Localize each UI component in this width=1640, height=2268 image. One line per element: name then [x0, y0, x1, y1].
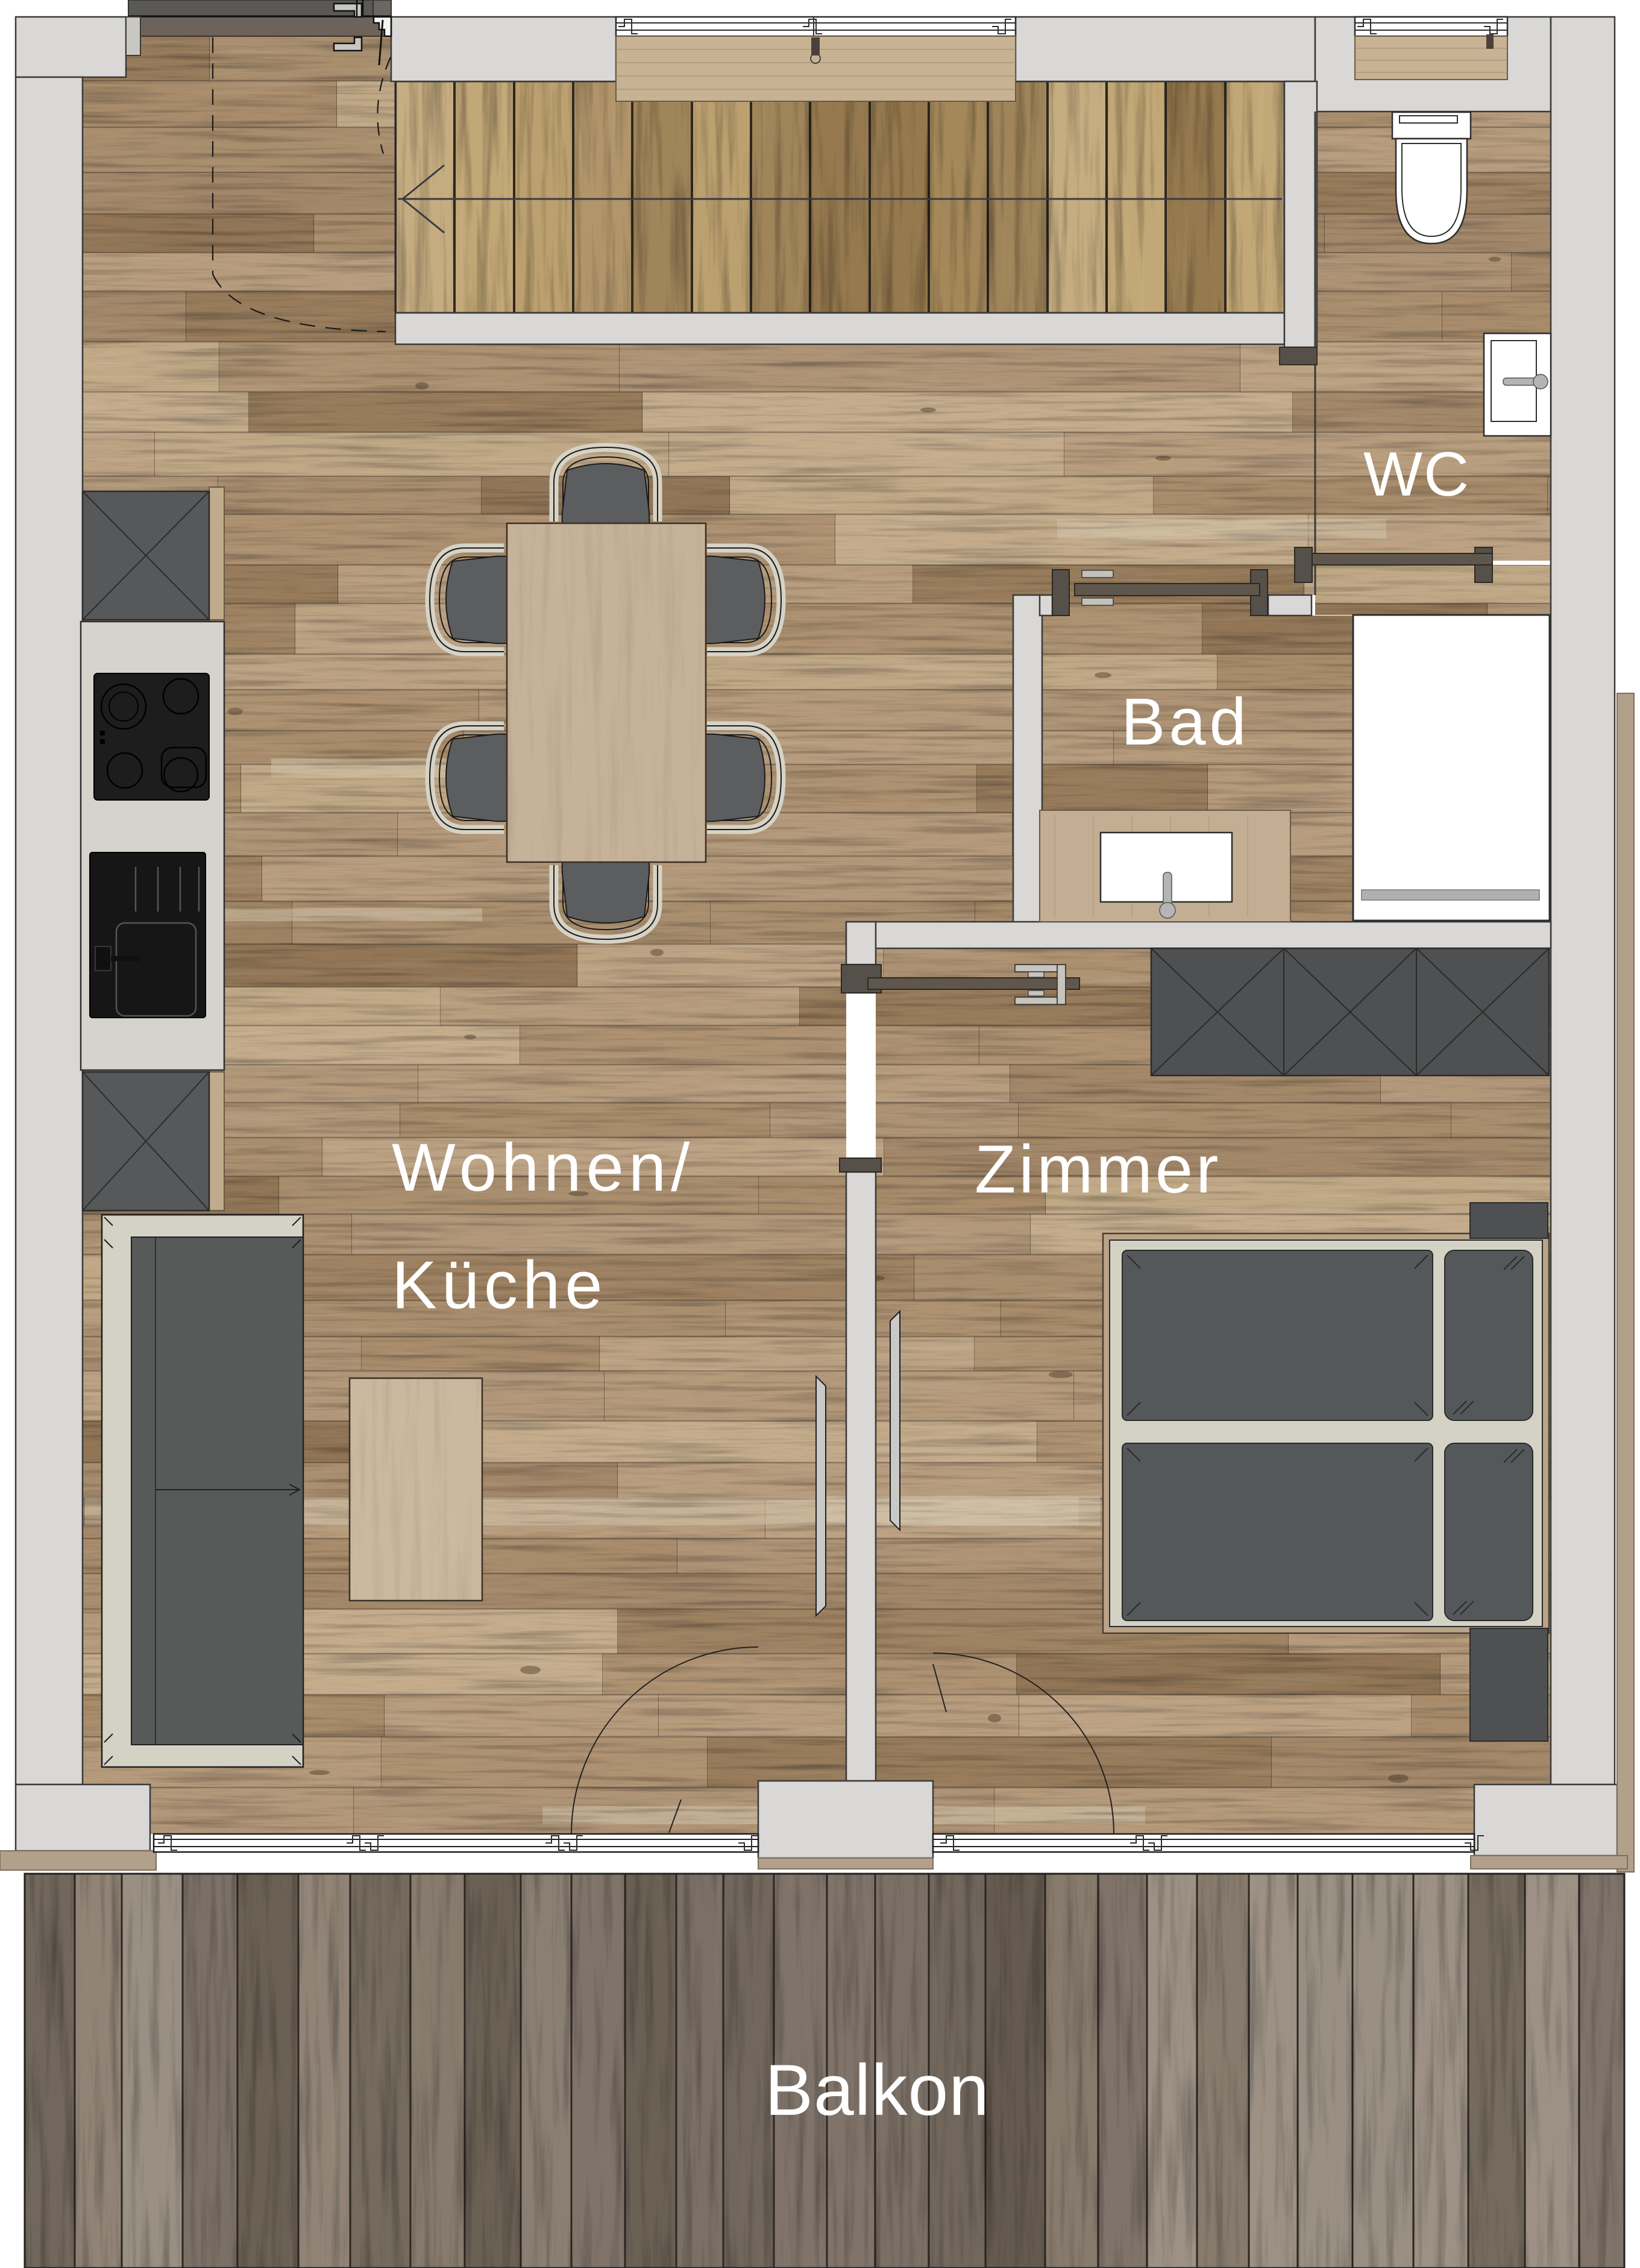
svg-text:Balkon: Balkon [765, 2050, 990, 2131]
svg-text:WC: WC [1363, 439, 1470, 509]
svg-text:Wohnen/: Wohnen/ [392, 1130, 694, 1205]
svg-text:Zimmer: Zimmer [975, 1132, 1221, 1207]
svg-text:Küche: Küche [392, 1247, 608, 1323]
svg-text:Bad: Bad [1121, 685, 1250, 759]
